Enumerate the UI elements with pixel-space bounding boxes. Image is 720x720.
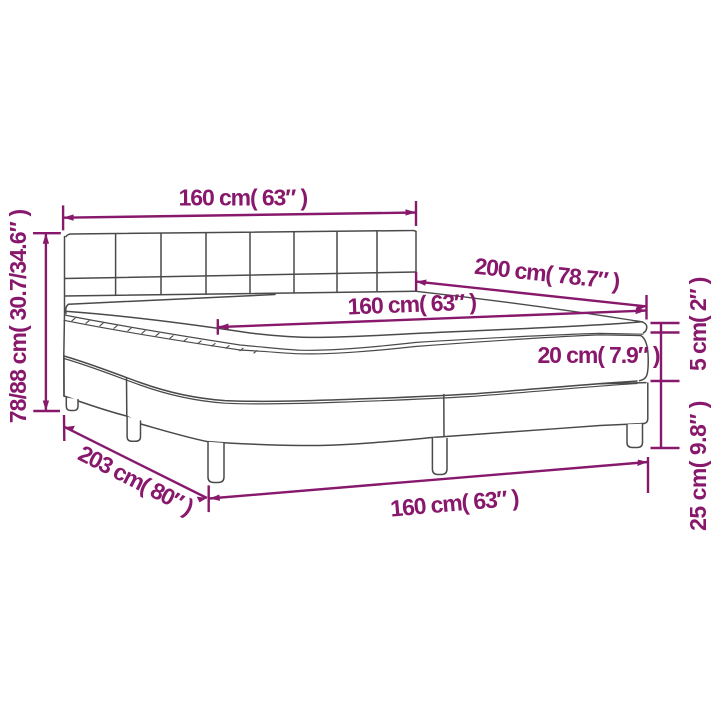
- svg-text:78/88 cm( 30.7/34.6″ ): 78/88 cm( 30.7/34.6″ ): [5, 210, 31, 424]
- svg-text:25 cm( 9.8″ ): 25 cm( 9.8″ ): [685, 401, 711, 531]
- svg-text:5 cm( 2″ ): 5 cm( 2″ ): [685, 277, 711, 371]
- svg-text:160 cm( 63″ ): 160 cm( 63″ ): [347, 289, 477, 320]
- svg-text:160 cm( 63″ ): 160 cm( 63″ ): [179, 185, 308, 211]
- svg-text:20 cm( 7.9″ ): 20 cm( 7.9″ ): [537, 342, 659, 368]
